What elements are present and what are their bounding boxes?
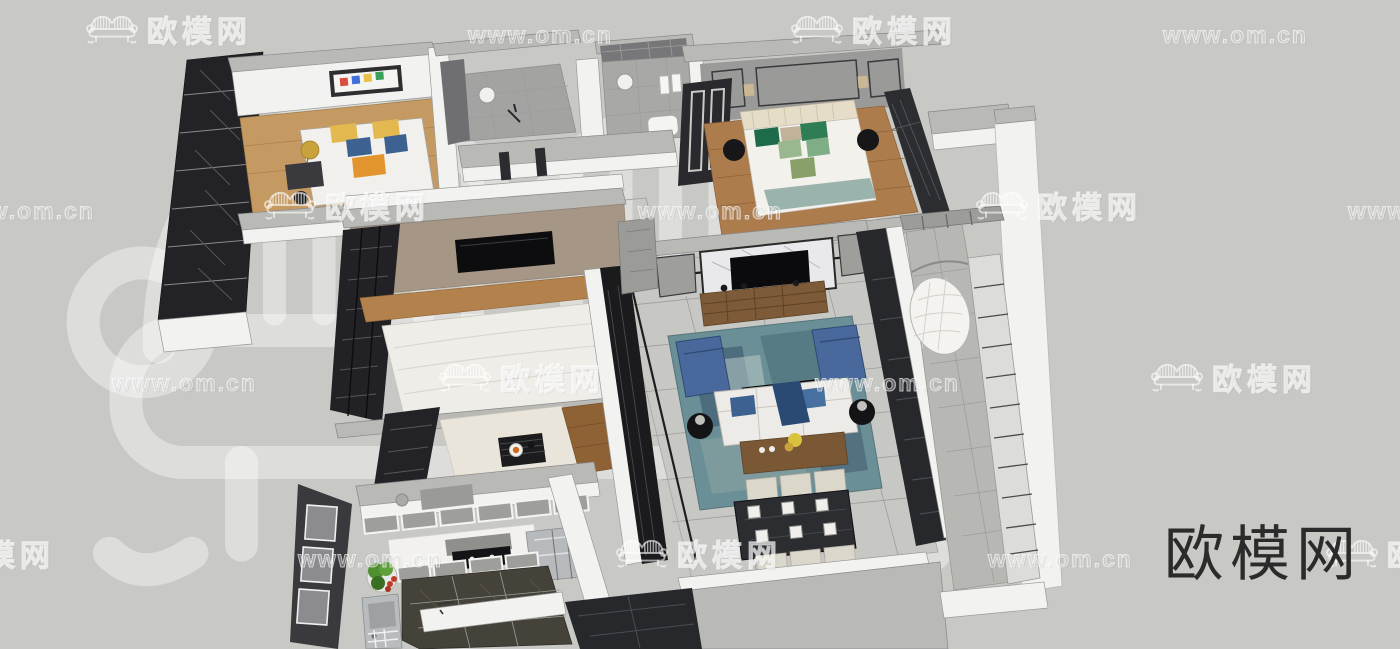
armchair-left — [676, 336, 730, 397]
floorplan-render — [0, 0, 1400, 649]
tea-table — [498, 433, 546, 467]
nw-paneled-corner — [618, 218, 658, 294]
table-lamp — [695, 415, 705, 425]
knob — [396, 494, 408, 506]
model-preview-canvas: 欧模网 www.om.cn 欧模网 www.om.cn www.om.cn 欧模… — [0, 0, 1400, 649]
nightstand — [857, 129, 879, 151]
wall-sconce — [743, 84, 754, 97]
table-lamp — [857, 401, 867, 411]
armchair-right — [812, 325, 866, 384]
ceiling-lamp — [479, 87, 495, 103]
room-living-dining — [600, 218, 960, 649]
room-bathrooms — [433, 30, 708, 182]
window-frames — [290, 484, 352, 649]
nightstand — [723, 139, 745, 161]
wardrobe — [330, 224, 400, 422]
towel — [671, 74, 681, 93]
sink — [362, 594, 402, 649]
wall-sconce — [857, 76, 868, 89]
master-bed — [740, 100, 876, 216]
ceiling-lamp — [617, 74, 633, 90]
vegetable-bowl — [367, 562, 397, 592]
towel — [659, 76, 669, 95]
